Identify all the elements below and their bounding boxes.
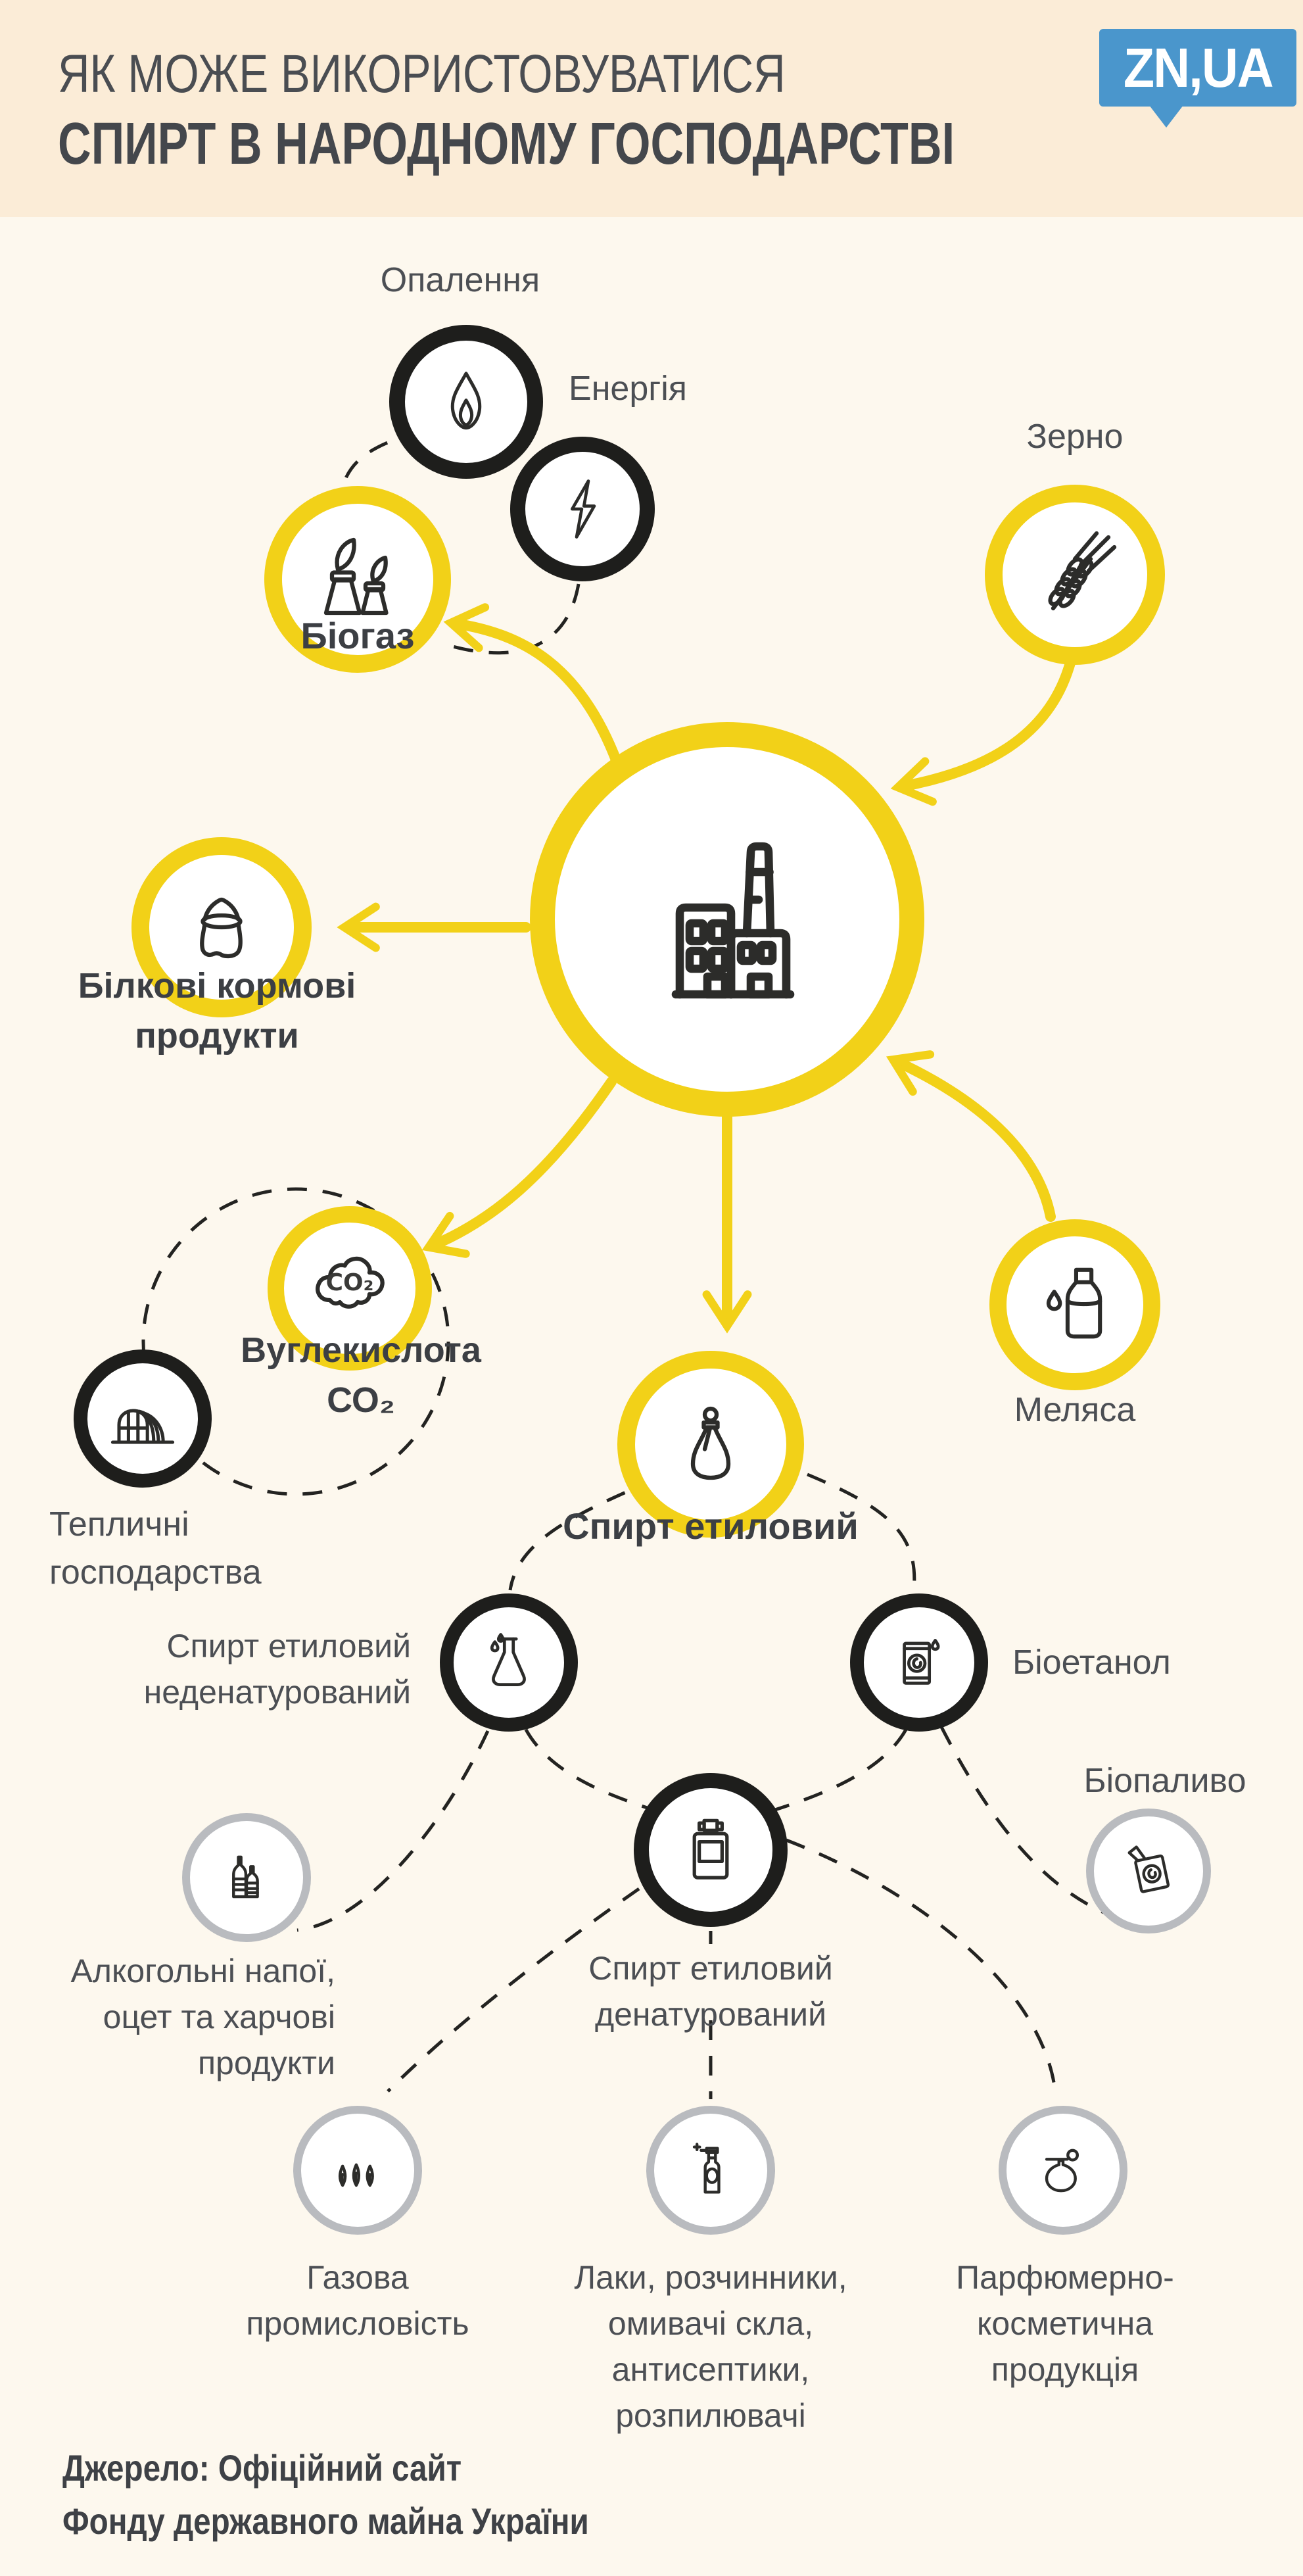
link-bioethanol-biofuel bbox=[941, 1727, 1110, 1915]
label-bioethanol: Біоетанол bbox=[1012, 1639, 1295, 1687]
molasses-bottle-icon bbox=[1028, 1257, 1123, 1353]
source-note: Джерело: Офіційний сайт Фонду державного… bbox=[62, 2441, 589, 2548]
infographic-canvas: ЯК МОЖЕ ВИКОРИСТОВУВАТИСЯ СПИРТ В НАРОДН… bbox=[0, 0, 1303, 2576]
wheat-icon bbox=[1026, 525, 1124, 624]
co2-icon-text: CO₂ bbox=[326, 1269, 374, 1296]
label-energy: Енергія bbox=[509, 365, 746, 413]
node-gas-industry bbox=[293, 2106, 422, 2235]
node-bioethanol bbox=[850, 1593, 988, 1732]
node-perfume bbox=[999, 2106, 1127, 2235]
node-alcoholic bbox=[182, 1813, 311, 1942]
label-biogas: Біогаз bbox=[239, 610, 476, 662]
flask-icon bbox=[472, 1626, 546, 1699]
node-biofuel bbox=[1086, 1809, 1211, 1933]
label-grain: Зерно bbox=[970, 413, 1180, 461]
link-bioethanol-denatured bbox=[763, 1730, 906, 1814]
page-title-line2: СПИРТ В НАРОДНОМУ ГОСПОДАРСТВІ bbox=[58, 110, 955, 178]
gas-flames-icon bbox=[323, 2136, 392, 2204]
link-undenatured-alcoholic bbox=[297, 1731, 488, 1930]
arrow-grain-to-factory bbox=[902, 663, 1070, 787]
node-factory bbox=[530, 722, 924, 1117]
arrow-factory-to-co2 bbox=[433, 1082, 611, 1246]
node-energy bbox=[510, 437, 655, 581]
label-alcoholic: Алкогольні напої, оцет та харчові продук… bbox=[33, 1948, 335, 2086]
label-perfume: Парфюмерно- косметична продукція bbox=[894, 2254, 1236, 2393]
link-undenatured-denatured bbox=[526, 1730, 661, 1812]
label-molasses: Меляса bbox=[957, 1386, 1193, 1434]
label-lacquers: Лаки, розчинники, омивачі скла, антисепт… bbox=[530, 2254, 891, 2439]
label-denatured: Спирт етиловий денатурований bbox=[540, 1945, 882, 2037]
node-molasses bbox=[989, 1219, 1160, 1390]
jerrycan-icon bbox=[1114, 1837, 1183, 1905]
znua-logo: ZN,UA bbox=[1099, 29, 1296, 107]
node-denatured bbox=[634, 1773, 788, 1927]
node-undenatured bbox=[440, 1593, 578, 1732]
bottles-icon bbox=[212, 1843, 281, 1912]
label-greenhouse: Тепличні господарства bbox=[49, 1501, 391, 1597]
co2-cloud-icon: CO₂ bbox=[300, 1239, 399, 1338]
label-heating: Опалення bbox=[309, 256, 611, 304]
spray-bottle-icon bbox=[676, 2136, 745, 2204]
znua-logo-text: ZN,UA bbox=[1124, 36, 1273, 100]
label-ethanol: Спирт етиловий bbox=[513, 1501, 908, 1552]
barrel-icon bbox=[882, 1626, 956, 1699]
node-grain bbox=[985, 485, 1165, 665]
factory-icon bbox=[628, 821, 826, 1018]
label-biofuel: Біопаливо bbox=[1027, 1757, 1303, 1805]
header: ЯК МОЖЕ ВИКОРИСТОВУВАТИСЯ СПИРТ В НАРОДН… bbox=[0, 0, 1303, 217]
lightning-icon bbox=[546, 472, 619, 546]
label-protein-feed: Білкові кормові продукти bbox=[36, 961, 398, 1061]
greenhouse-icon bbox=[103, 1379, 182, 1458]
arrow-molasses-to-factory bbox=[897, 1061, 1051, 1217]
decanter-icon bbox=[661, 1395, 760, 1494]
flame-icon bbox=[427, 362, 506, 441]
label-gas-industry: Газова промисловість bbox=[193, 2254, 522, 2346]
label-undenatured: Спирт етиловий неденатурований bbox=[56, 1623, 411, 1715]
znua-logo-tail bbox=[1149, 105, 1183, 145]
perfume-bottle-icon bbox=[1029, 2136, 1097, 2204]
flacon-icon bbox=[670, 1809, 751, 1891]
node-lacquers bbox=[646, 2106, 775, 2235]
label-co2: Вуглекислота СО₂ bbox=[180, 1326, 542, 1425]
page-title-line1: ЯК МОЖЕ ВИКОРИСТОВУВАТИСЯ bbox=[58, 43, 786, 105]
